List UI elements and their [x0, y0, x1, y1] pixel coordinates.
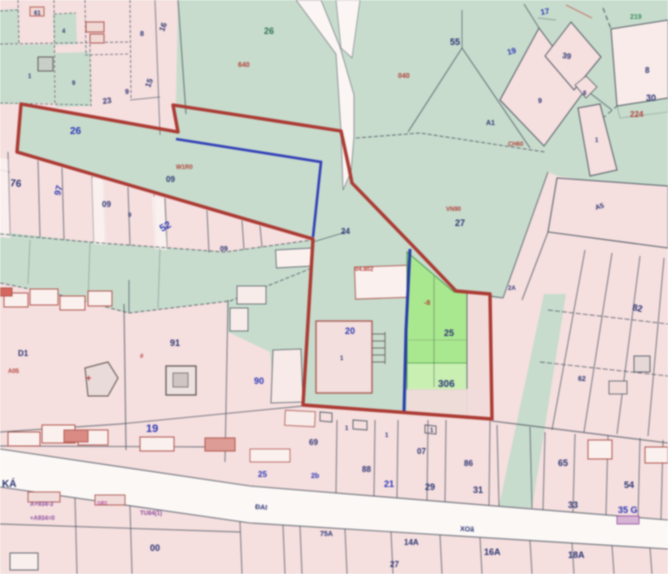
svg-text:09: 09 [166, 175, 175, 184]
svg-text:27: 27 [390, 560, 399, 569]
svg-text:55: 55 [450, 37, 460, 47]
svg-text:54: 54 [624, 480, 634, 490]
svg-text:75A: 75A [320, 531, 333, 538]
svg-text:W1R0: W1R0 [176, 165, 193, 171]
svg-text:39: 39 [562, 51, 573, 61]
svg-text:TU84(1): TU84(1) [140, 511, 162, 517]
svg-text:29: 29 [425, 482, 435, 492]
svg-text:A1: A1 [486, 120, 495, 127]
svg-text:+: + [86, 373, 91, 383]
svg-text:27: 27 [455, 218, 465, 228]
svg-text:00: 00 [150, 543, 160, 553]
svg-text:224: 224 [630, 110, 644, 119]
svg-text:69: 69 [309, 438, 318, 447]
svg-text:25: 25 [444, 328, 454, 338]
svg-text:14A: 14A [404, 538, 419, 547]
svg-text:91: 91 [170, 338, 180, 348]
svg-text:A05: A05 [8, 369, 20, 375]
svg-text:35 G: 35 G [618, 505, 638, 515]
svg-text:-8: -8 [424, 300, 430, 307]
svg-text:=#=: =#= [97, 501, 108, 507]
svg-text:A+934-3: A+934-3 [30, 502, 54, 508]
svg-text:8: 8 [645, 66, 650, 75]
svg-text:D1: D1 [18, 349, 29, 358]
svg-text:20: 20 [345, 326, 355, 336]
svg-text:09: 09 [220, 246, 228, 253]
svg-text:61: 61 [34, 11, 41, 17]
svg-text:24: 24 [341, 227, 350, 236]
svg-text:65: 65 [558, 458, 568, 468]
svg-text:CH60: CH60 [508, 142, 524, 148]
svg-text:18A: 18A [568, 550, 585, 560]
svg-text:31: 31 [473, 485, 483, 495]
svg-text:23: 23 [102, 96, 113, 106]
svg-text:8: 8 [140, 31, 144, 38]
svg-text:30: 30 [646, 93, 656, 103]
svg-text:76: 76 [10, 178, 22, 190]
svg-text:86: 86 [464, 459, 473, 468]
svg-text:XOã: XOã [460, 526, 474, 534]
svg-text:040: 040 [398, 73, 410, 80]
svg-text:26: 26 [70, 126, 82, 137]
svg-text:306: 306 [438, 379, 455, 390]
svg-text:21: 21 [384, 479, 394, 489]
svg-text:26: 26 [264, 26, 274, 36]
svg-text:33: 33 [568, 500, 578, 510]
svg-text:04.802: 04.802 [355, 267, 374, 273]
svg-text:88: 88 [362, 465, 371, 474]
svg-text:2A: 2A [508, 286, 516, 292]
svg-text:90: 90 [254, 376, 264, 386]
svg-text:9: 9 [538, 98, 542, 105]
svg-text:2b: 2b [311, 473, 319, 480]
svg-text:09: 09 [102, 200, 111, 209]
svg-text:VN90: VN90 [446, 207, 462, 213]
svg-text:62: 62 [578, 376, 586, 383]
svg-text:640: 640 [238, 62, 250, 69]
svg-text:KÁ: KÁ [2, 477, 16, 490]
svg-text:19: 19 [146, 423, 158, 435]
svg-text:16A: 16A [484, 547, 501, 557]
svg-text:9: 9 [125, 89, 129, 96]
svg-text:07: 07 [417, 447, 426, 456]
svg-text:25: 25 [258, 470, 267, 479]
svg-text:219: 219 [630, 14, 642, 21]
svg-text:82: 82 [632, 302, 644, 314]
svg-text:+A934=0: +A934=0 [30, 516, 55, 522]
svg-text:ĐAI: ĐAI [255, 504, 268, 512]
